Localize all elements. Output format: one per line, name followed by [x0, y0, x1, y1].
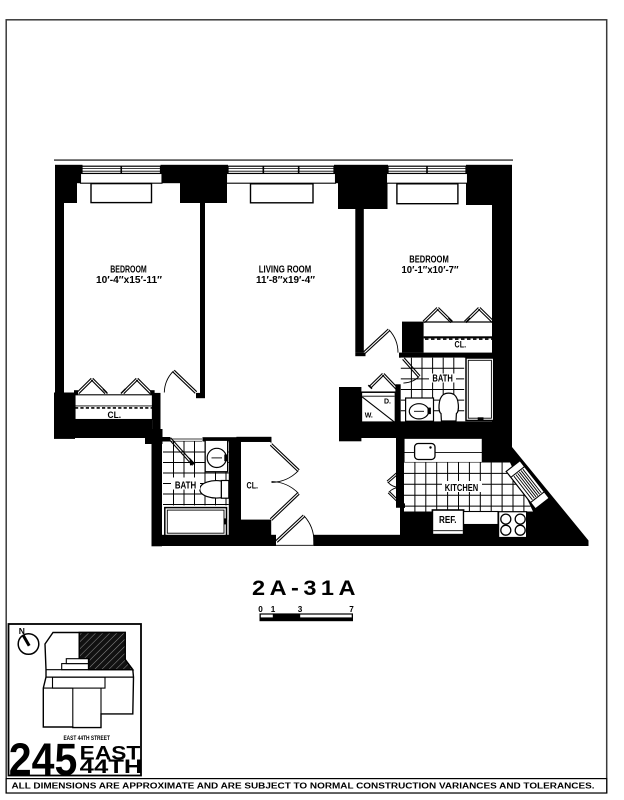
svg-text:245: 245 — [9, 734, 78, 785]
svg-text:44TH: 44TH — [80, 756, 143, 778]
svg-text:KITCHEN: KITCHEN — [445, 483, 479, 494]
svg-text:CL.: CL. — [455, 340, 467, 350]
svg-text:REF.: REF. — [439, 515, 457, 526]
svg-text:11′-8″x19′-4″: 11′-8″x19′-4″ — [256, 275, 315, 286]
svg-text:N: N — [19, 626, 25, 636]
svg-text:CL.: CL. — [247, 481, 259, 491]
svg-text:2A-31A: 2A-31A — [252, 577, 360, 600]
svg-text:0: 0 — [258, 605, 263, 614]
svg-text:BATH: BATH — [175, 481, 196, 492]
svg-text:3: 3 — [298, 605, 303, 614]
svg-text:7: 7 — [349, 605, 354, 614]
svg-text:1: 1 — [271, 605, 276, 614]
svg-text:BATH: BATH — [432, 374, 453, 385]
svg-text:ALL DIMENSIONS ARE APPROXIMATE: ALL DIMENSIONS ARE APPROXIMATE AND ARE S… — [12, 781, 595, 790]
svg-text:D.: D. — [384, 399, 391, 406]
svg-text:W.: W. — [365, 413, 373, 420]
svg-text:CL.: CL. — [108, 410, 122, 420]
svg-text:10′-1″x10′-7″: 10′-1″x10′-7″ — [402, 265, 459, 276]
svg-text:BEDROOM: BEDROOM — [409, 255, 449, 266]
svg-text:10′-4″x15′-11″: 10′-4″x15′-11″ — [96, 275, 162, 286]
